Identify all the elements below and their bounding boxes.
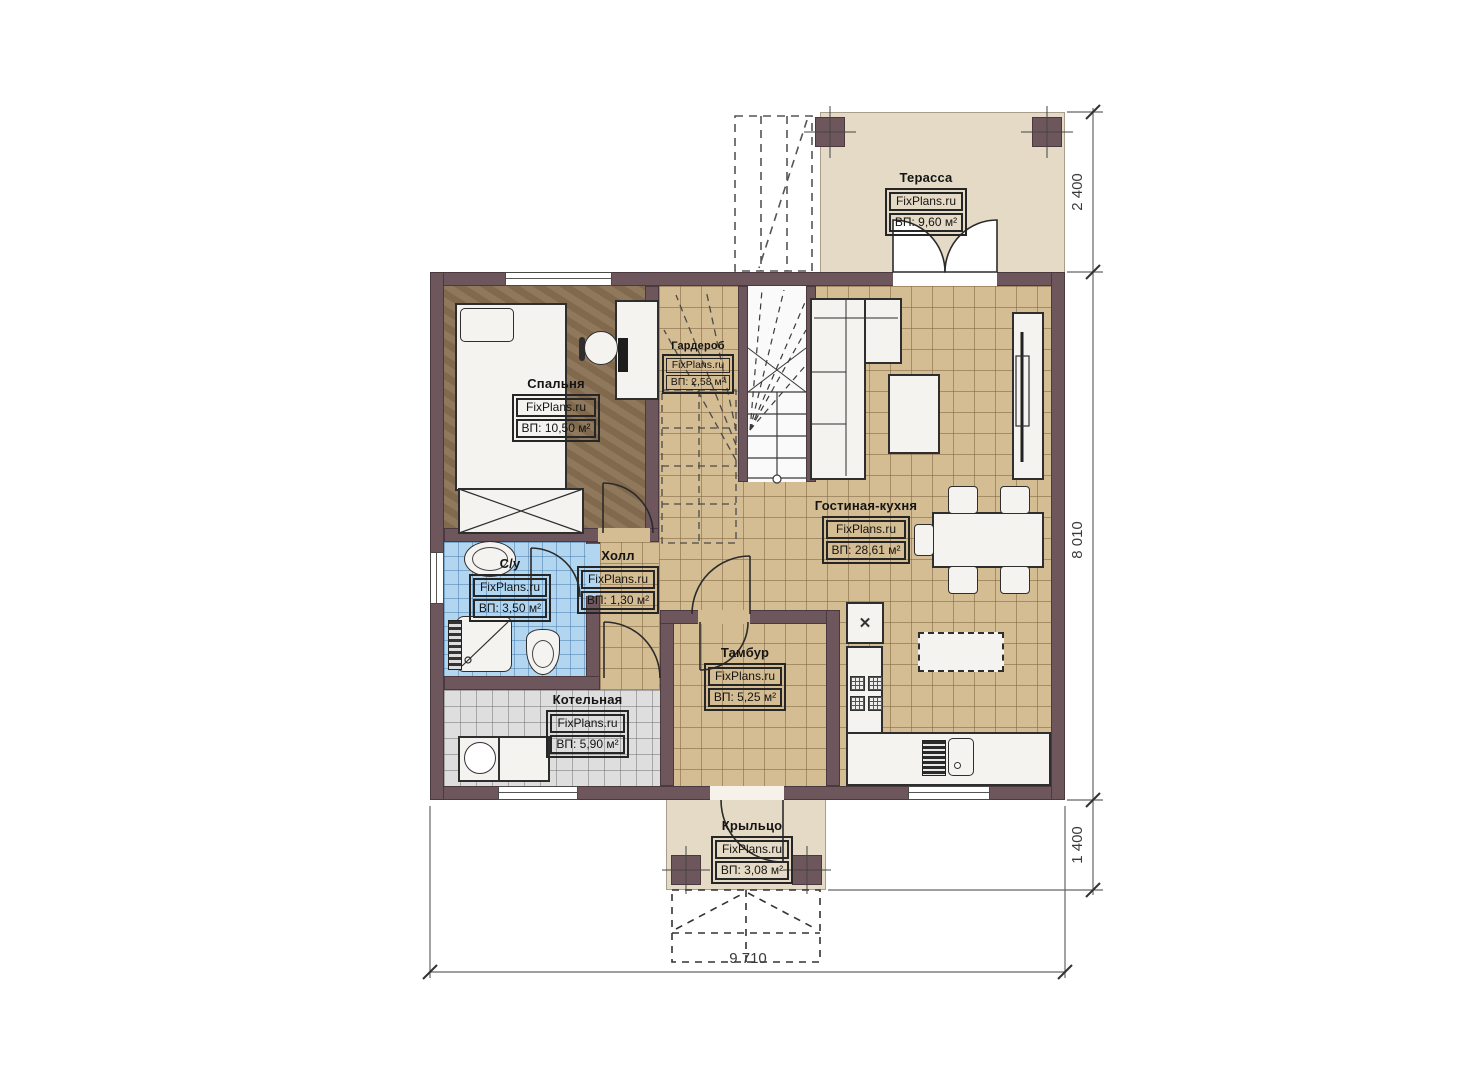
room-name: Спальня <box>527 376 585 391</box>
dish-rack <box>922 740 946 776</box>
room-name: Котельная <box>553 692 623 707</box>
brand-text: FixPlans.ru <box>826 520 907 539</box>
bathroom-label: С/у FixPlans.ru ВП: 3,50 м² <box>464 556 556 622</box>
brand-text: FixPlans.ru <box>889 192 963 211</box>
label-box: FixPlans.ru ВП: 1,30 м² <box>577 566 659 614</box>
terrace-column-right <box>1032 117 1062 147</box>
kitchen-island <box>918 632 1004 672</box>
terrace-column-left <box>815 117 845 147</box>
room-area: ВП: 3,50 м² <box>473 599 547 618</box>
stove-burner <box>868 696 883 711</box>
dimension-porch-depth: 1 400 <box>1069 815 1087 875</box>
desk-chair-back <box>579 337 585 361</box>
brand-text: FixPlans.ru <box>708 667 782 686</box>
brand-text: FixPlans.ru <box>550 714 624 733</box>
boiler-counter-divider <box>498 738 500 780</box>
label-box: FixPlans.ru ВП: 28,61 м² <box>822 516 911 564</box>
toilet-seat <box>532 640 554 668</box>
dimension-house-depth: 8 010 <box>1069 510 1087 570</box>
wardrobe-cabinet <box>458 488 584 534</box>
living-kitchen-label: Гостиная-кухня FixPlans.ru ВП: 28,61 м² <box>810 498 922 564</box>
brand-text: FixPlans.ru <box>516 398 597 417</box>
dining-chair <box>1000 486 1030 514</box>
wall-bathroom-bottom <box>444 676 600 690</box>
terrace-label: Терасса FixPlans.ru ВП: 9,60 м² <box>870 170 982 236</box>
desk-chair <box>584 331 618 365</box>
room-area: ВП: 3,08 м² <box>715 861 789 880</box>
dimension-house-width: 9 710 <box>718 950 778 968</box>
floor-plan: ✕ <box>0 0 1473 1080</box>
vestibule-door-opening <box>698 610 750 624</box>
kitchen-sink <box>948 738 974 776</box>
sink-faucet <box>954 762 961 769</box>
bed-pillow <box>460 308 514 342</box>
label-box: FixPlans.ru ВП: 10,50 м² <box>512 394 601 442</box>
dining-chair <box>948 566 978 594</box>
staircase-floor <box>746 286 808 482</box>
room-area: ВП: 1,30 м² <box>581 591 655 610</box>
wall-right <box>1051 272 1065 800</box>
wall-vestibule-right <box>826 610 840 786</box>
coffee-table <box>888 374 940 454</box>
bathroom-window <box>430 552 444 604</box>
label-box: FixPlans.ru ВП: 5,25 м² <box>704 663 786 711</box>
wardrobe-label: Гардероб FixPlans.ru ВП: 2,58 м² <box>655 340 741 394</box>
room-name: Гостиная-кухня <box>815 498 917 513</box>
bedroom-window <box>505 272 612 286</box>
room-area: ВП: 10,50 м² <box>516 419 597 438</box>
room-area: ВП: 5,90 м² <box>550 735 624 754</box>
room-name: Холл <box>601 548 634 563</box>
tv-unit <box>1012 312 1044 480</box>
fridge: ✕ <box>846 602 884 644</box>
room-area: ВП: 5,25 м² <box>708 688 782 707</box>
upper-stair-outline <box>735 116 812 271</box>
washing-machine-drum <box>464 742 496 774</box>
brand-text: FixPlans.ru <box>581 570 655 589</box>
wall-vestibule-top <box>660 610 840 624</box>
terrace-door-opening <box>893 272 997 286</box>
dining-table <box>932 512 1044 568</box>
stove-burner <box>868 676 883 691</box>
stove-burner <box>850 676 865 691</box>
room-area: ВП: 2,58 м² <box>666 375 730 390</box>
room-name: Терасса <box>900 170 953 185</box>
wall-vestibule-left <box>660 610 674 786</box>
entry-door-opening <box>710 786 784 800</box>
bedroom-label: Спальня FixPlans.ru ВП: 10,50 м² <box>502 376 610 442</box>
label-box: FixPlans.ru ВП: 3,08 м² <box>711 836 793 884</box>
boiler-window <box>498 786 578 800</box>
dining-chair <box>948 486 978 514</box>
label-box: FixPlans.ru ВП: 3,50 м² <box>469 574 551 622</box>
room-name: Гардероб <box>671 340 725 352</box>
brand-text: FixPlans.ru <box>666 358 730 373</box>
room-name: С/у <box>500 556 521 571</box>
hall-label: Холл FixPlans.ru ВП: 1,30 м² <box>572 548 664 614</box>
desk-monitor <box>618 338 628 372</box>
vestibule-label: Тамбур FixPlans.ru ВП: 5,25 м² <box>698 645 792 711</box>
boiler-label: Котельная FixPlans.ru ВП: 5,90 м² <box>540 692 635 758</box>
appliance-cross-icon: ✕ <box>859 614 872 632</box>
room-area: ВП: 9,60 м² <box>889 213 963 232</box>
stove-burner <box>850 696 865 711</box>
brand-text: FixPlans.ru <box>715 840 789 859</box>
room-name: Тамбур <box>721 645 769 660</box>
bedroom-door-opening <box>598 528 650 542</box>
dining-chair <box>1000 566 1030 594</box>
label-box: FixPlans.ru ВП: 2,58 м² <box>662 354 734 394</box>
wall-left <box>430 272 444 800</box>
label-box: FixPlans.ru ВП: 5,90 м² <box>546 710 628 758</box>
shower-tray <box>456 616 512 672</box>
room-area: ВП: 28,61 м² <box>826 541 907 560</box>
dimension-terrace-depth: 2 400 <box>1069 162 1087 222</box>
kitchen-window <box>908 786 990 800</box>
porch-column-left <box>671 855 701 885</box>
room-name: Крыльцо <box>722 818 783 833</box>
brand-text: FixPlans.ru <box>473 578 547 597</box>
porch-label: Крыльцо FixPlans.ru ВП: 3,08 м² <box>702 818 802 884</box>
sofa-body <box>810 298 866 480</box>
water-heater <box>448 620 462 670</box>
label-box: FixPlans.ru ВП: 9,60 м² <box>885 188 967 236</box>
